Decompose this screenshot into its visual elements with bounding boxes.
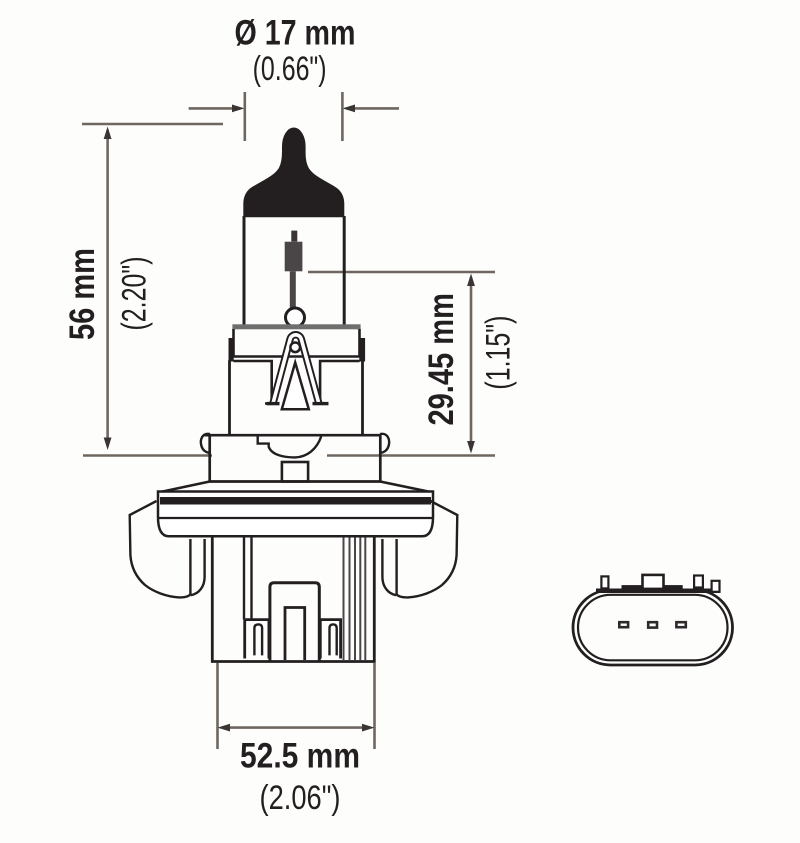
svg-text:(2.06"): (2.06") [260,779,341,817]
svg-text:(2.20"): (2.20") [116,257,154,331]
svg-text:(1.15"): (1.15") [480,316,518,390]
svg-text:56 mm: 56 mm [63,248,102,340]
svg-text:29.45 mm: 29.45 mm [422,293,461,426]
svg-text:52.5 mm: 52.5 mm [240,737,360,776]
svg-text:(0.66"): (0.66") [253,50,327,88]
svg-text:Ø 17 mm: Ø 17 mm [235,14,356,53]
